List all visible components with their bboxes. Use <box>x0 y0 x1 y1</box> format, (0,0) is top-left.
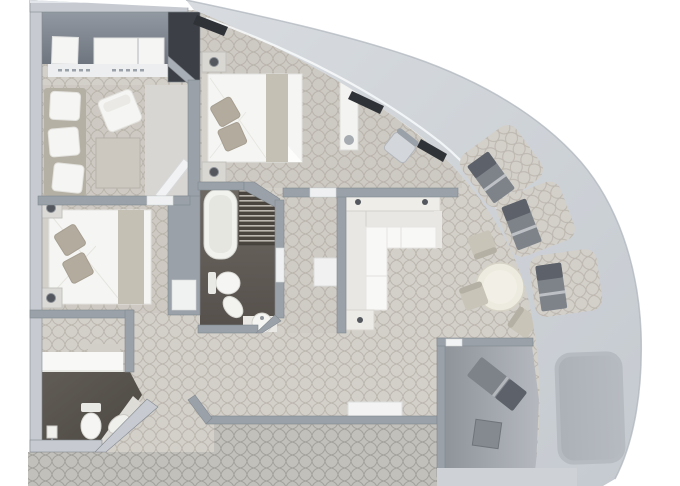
powder-toilet <box>81 413 101 439</box>
balcony-deck-inset <box>554 351 626 465</box>
table-lamp <box>47 294 56 303</box>
hull-bottom-closure <box>437 468 577 486</box>
master-bed-runner <box>266 74 288 162</box>
balcony-cutout-3 <box>528 248 604 319</box>
toilet-tank <box>208 272 216 294</box>
private-room-floor <box>445 346 539 468</box>
sofa-cushion <box>52 163 85 194</box>
table-lamp <box>210 58 219 67</box>
powder-vanity-counter <box>42 352 123 372</box>
powder-toilet-tank <box>81 403 101 412</box>
dressing-bench-shelf <box>314 258 340 286</box>
wall-bathroom-bottom <box>198 325 258 333</box>
bedroom2-door-gap <box>147 196 173 205</box>
suite-interior <box>28 0 544 486</box>
bed2-runner <box>118 210 144 304</box>
coffee-table <box>96 138 140 188</box>
sitting-room <box>44 85 191 200</box>
console-knob <box>422 199 428 205</box>
master-door-gap <box>310 188 336 197</box>
private-side-table <box>472 419 501 448</box>
wall-dressing-living <box>337 190 346 333</box>
outer-wall-top-highlight <box>30 0 188 3</box>
sofa-cushion <box>48 127 80 158</box>
toilet <box>216 272 240 294</box>
wall-bathroom-top <box>198 182 244 190</box>
wardrobe-luggage-room <box>42 10 170 77</box>
corridor-floor-upper-pattern <box>214 424 440 452</box>
side-table-knob <box>357 317 363 323</box>
floor-plan-svg <box>0 0 680 486</box>
private-balcony-room <box>445 346 539 468</box>
bedroom-2 <box>40 198 151 308</box>
wall-below-bedroom2 <box>30 310 133 318</box>
sofa-back-left <box>346 211 366 310</box>
master-bathroom <box>200 187 277 333</box>
storage-box <box>52 37 79 65</box>
bathtub-basin <box>209 195 232 253</box>
paper-holder <box>47 426 57 438</box>
wall-private-left <box>437 338 445 477</box>
luggage-bench <box>94 38 164 66</box>
outer-wall-left <box>30 0 42 452</box>
wall-master-living <box>283 188 458 197</box>
bedroom2-door <box>172 280 196 310</box>
wall-powder-right <box>125 310 134 372</box>
console-knob <box>355 199 361 205</box>
dining-table-top <box>483 270 517 304</box>
bathroom-door <box>276 248 284 282</box>
table-lamp <box>210 168 219 177</box>
wardrobe-knob <box>344 135 354 145</box>
media-bench <box>348 402 402 417</box>
wall-living-bottom <box>206 416 437 424</box>
faucet <box>260 316 264 320</box>
floor-plan <box>0 0 680 486</box>
outer-wall-bottom-left <box>30 440 102 452</box>
sofa-seats-left <box>366 227 387 310</box>
sofa-cushion <box>49 91 80 121</box>
private-room-door <box>446 339 462 346</box>
master-headboard <box>202 74 208 162</box>
powder-vanity-step <box>88 344 120 352</box>
wall-sitting-master <box>188 80 200 198</box>
